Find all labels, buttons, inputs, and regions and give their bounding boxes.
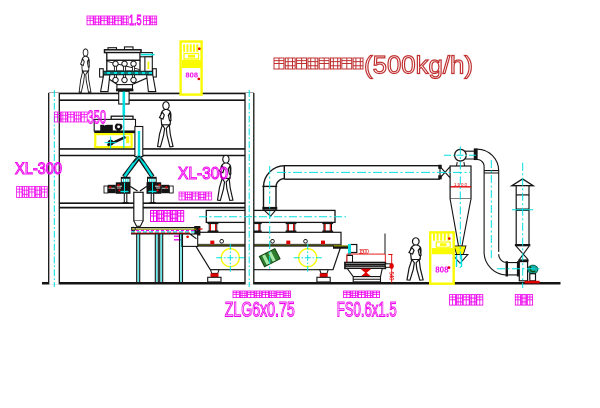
svg-text:(500kg/h): (500kg/h) (364, 52, 473, 80)
svg-text:FS0.6x1.5: FS0.6x1.5 (337, 299, 397, 322)
svg-text:808: 808 (435, 265, 449, 274)
svg-text:1500: 1500 (359, 250, 370, 256)
svg-text:1.5: 1.5 (129, 12, 142, 29)
svg-text:XL-300: XL-300 (178, 163, 228, 183)
svg-text:350: 350 (88, 108, 107, 128)
svg-text:540: 540 (388, 272, 394, 282)
svg-text:808: 808 (186, 71, 199, 80)
svg-text:XL-300: XL-300 (15, 160, 62, 178)
svg-text:ZLG6x0.75: ZLG6x0.75 (225, 299, 295, 322)
